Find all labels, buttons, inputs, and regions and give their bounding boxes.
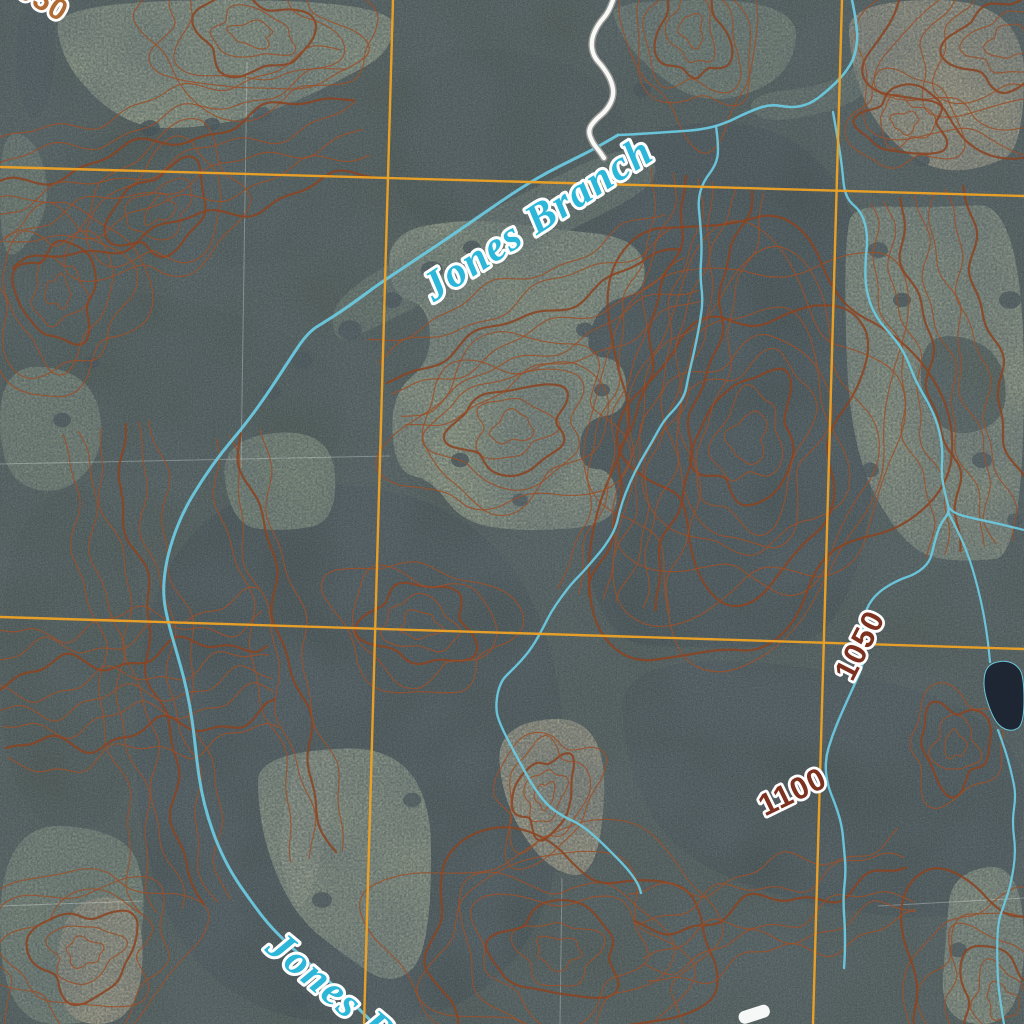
topo-map-canvas[interactable]: Jones BranchJones Branch105011001050 xyxy=(0,0,1024,1024)
topo-map-viewport[interactable]: Jones BranchJones Branch105011001050 xyxy=(0,0,1024,1024)
